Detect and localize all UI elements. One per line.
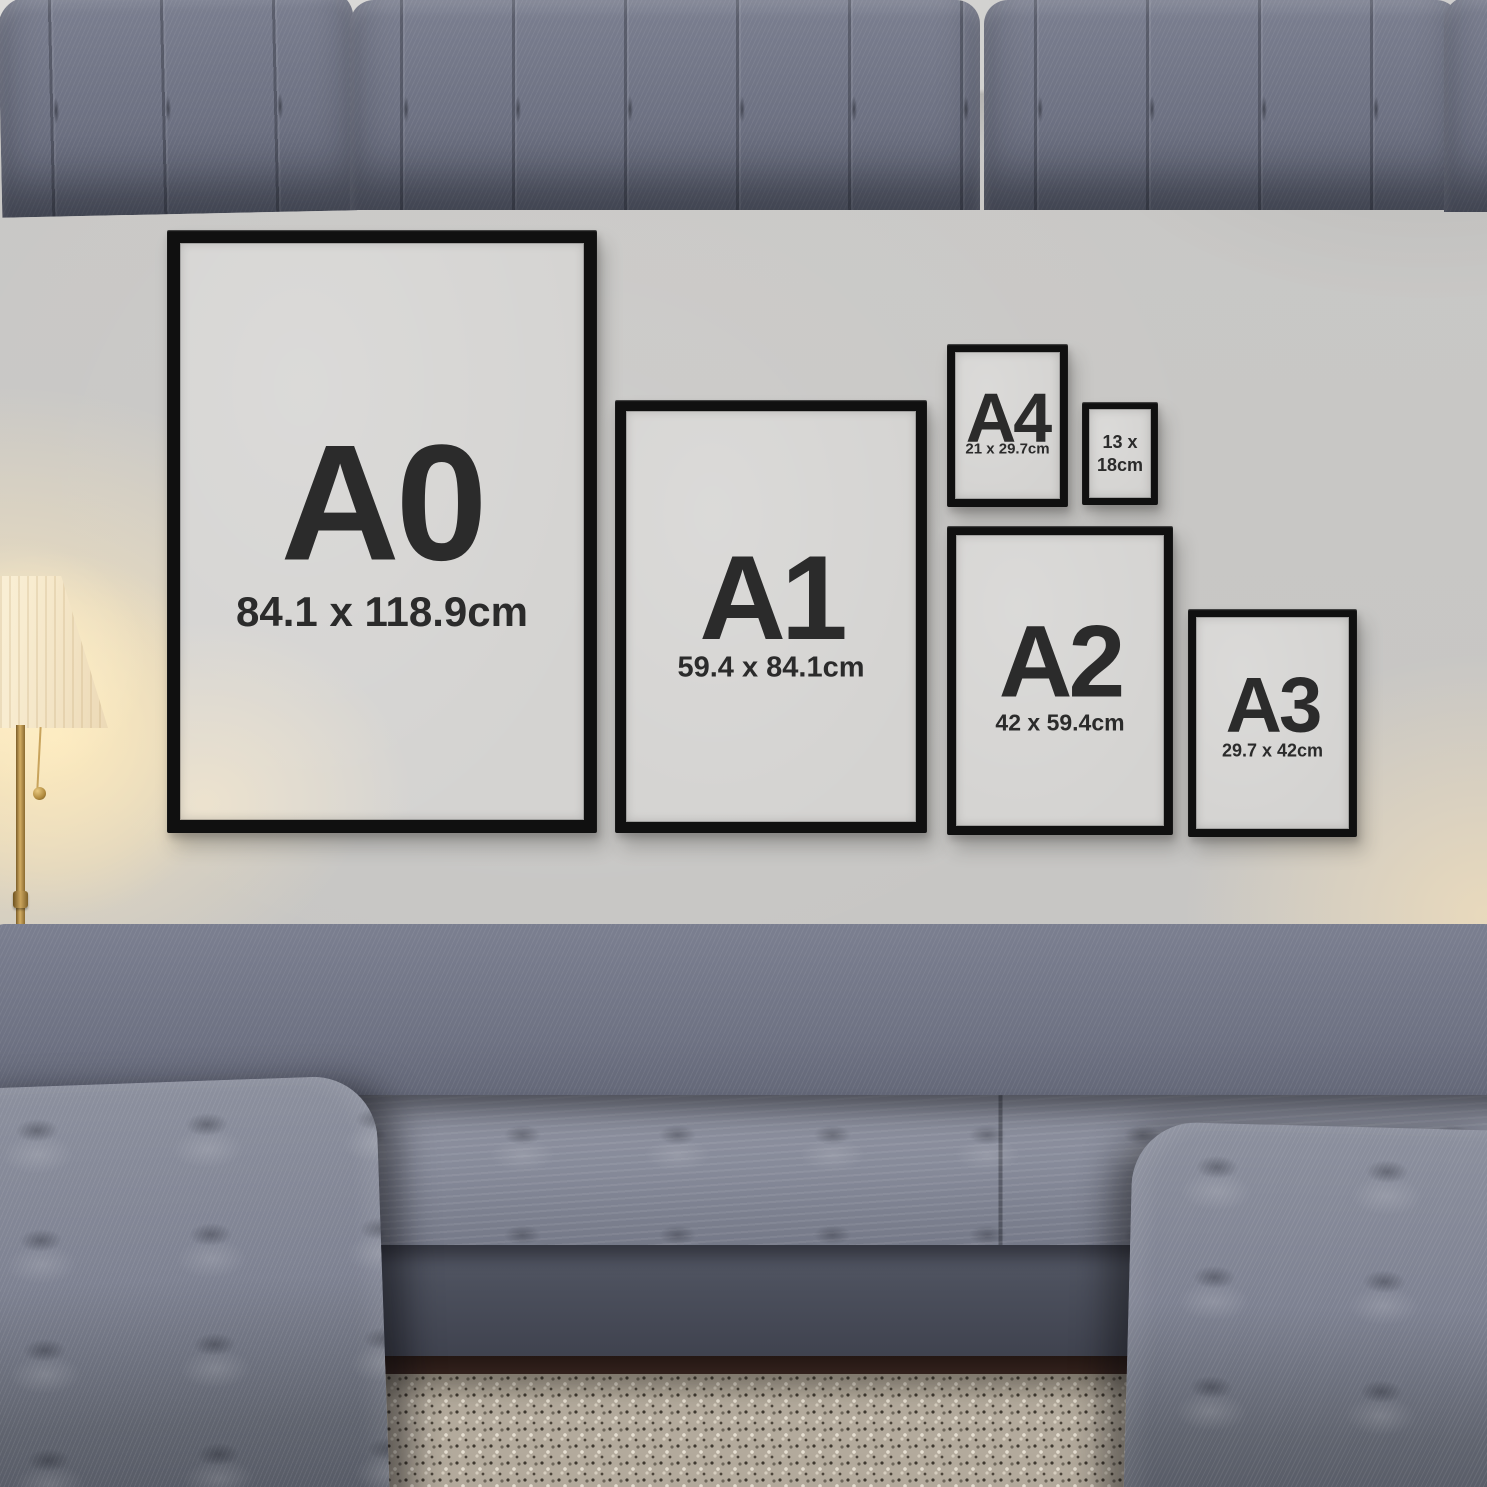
frame-a4: A4 21 x 29.7cm — [947, 344, 1068, 507]
frame-a1-mat: A1 59.4 x 84.1cm — [626, 411, 916, 822]
poster-size-dimensions: 59.4 x 84.1cm — [677, 651, 864, 684]
poster-size-dimensions: 42 x 59.4cm — [995, 709, 1124, 736]
frame-a3: A3 29.7 x 42cm — [1188, 609, 1357, 837]
poster-size-dimensions: 21 x 29.7cm — [965, 441, 1049, 458]
frame-a4-mat: A4 21 x 29.7cm — [955, 352, 1060, 499]
poster-size-code: A2 — [999, 603, 1121, 720]
floor-lamp-pole-joint — [13, 891, 28, 908]
frame-a0-mat: A0 84.1 x 118.9cm — [180, 243, 584, 820]
floor-lamp-pole — [16, 725, 25, 957]
lamp-pull-chain-ball — [33, 787, 46, 800]
poster-size-dimensions: 29.7 x 42cm — [1222, 740, 1323, 761]
sofa-back-cushion-right-corner — [1444, 0, 1487, 212]
frame-13x18: 13 x 18cm — [1082, 402, 1158, 505]
frame-a1: A1 59.4 x 84.1cm — [615, 400, 927, 833]
poster-size-dimensions: 13 x 18cm — [1097, 431, 1143, 477]
sofa-back-cushion-2 — [984, 0, 1460, 210]
frame-a0: A0 84.1 x 118.9cm — [167, 230, 597, 833]
sofa-back-cushion-1 — [350, 0, 980, 210]
frame-13x18-mat: 13 x 18cm — [1089, 409, 1151, 498]
poster-size-code: A3 — [1226, 659, 1320, 750]
living-room-size-guide-scene: A0 84.1 x 118.9cm A1 59.4 x 84.1cm A4 21… — [0, 0, 1487, 1487]
frame-a2: A2 42 x 59.4cm — [947, 526, 1173, 835]
frame-a2-mat: A2 42 x 59.4cm — [956, 535, 1164, 826]
poster-size-dimensions: 84.1 x 118.9cm — [236, 588, 528, 636]
sofa-back-cushion-left-corner — [0, 0, 357, 218]
poster-size-code: A0 — [281, 408, 484, 597]
sofa-chaise-left — [0, 1075, 391, 1487]
poster-size-code: A1 — [699, 529, 842, 667]
sofa-chaise-right — [1123, 1121, 1487, 1487]
frame-a3-mat: A3 29.7 x 42cm — [1196, 617, 1349, 829]
